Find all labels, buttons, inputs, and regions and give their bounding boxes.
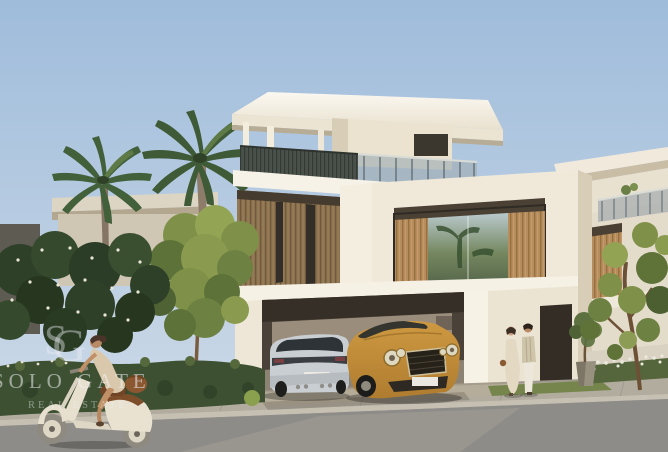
penthouse-window [414, 134, 448, 156]
handbag [500, 360, 506, 366]
corner-pillar [340, 183, 372, 298]
carport-pillar [464, 291, 488, 392]
entrance-door [540, 304, 572, 388]
balcony-plant [621, 185, 631, 195]
suv-car [262, 334, 350, 401]
bentley-license-plate [412, 377, 438, 386]
small-bush [244, 390, 260, 406]
scene-canvas [0, 0, 668, 452]
slot-window [306, 204, 315, 284]
slot-window [276, 202, 283, 283]
bentley-car [346, 321, 462, 404]
hair-bun [100, 336, 107, 343]
render-image: SG SOLO GATE REAL ESTATE [0, 0, 668, 452]
